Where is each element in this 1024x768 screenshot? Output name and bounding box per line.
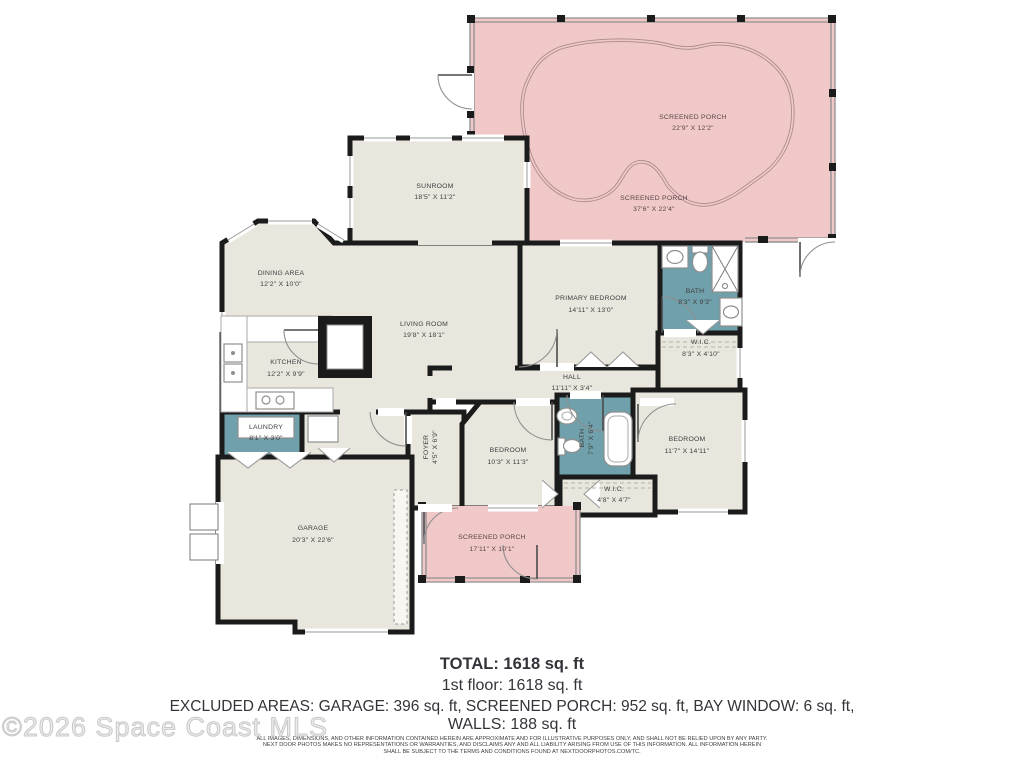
label-laundry-name: LAUNDRY bbox=[249, 424, 283, 431]
label-foyer-name: FOYER bbox=[423, 435, 430, 460]
garage-door-leaf bbox=[190, 504, 218, 530]
sunroom bbox=[350, 138, 527, 243]
garage-door-leaf bbox=[190, 534, 218, 560]
label-pool-porch-dims: 22'9" X 12'2" bbox=[672, 125, 714, 132]
floor-plan-page: SCREENED PORCH 22'9" X 12'2" SCREENED PO… bbox=[0, 0, 1024, 768]
label-living-dims: 19'8" X 18'1" bbox=[403, 332, 445, 339]
total-area-text: TOTAL: 1618 sq. ft bbox=[0, 655, 1024, 674]
label-kitchen-dims: 12'2" X 9'9" bbox=[267, 371, 305, 378]
label-bedroom3-name: BEDROOM bbox=[669, 436, 706, 443]
label-hall-name: HALL bbox=[563, 374, 581, 381]
label-bath2-dims: 7'9" X 6'4" bbox=[588, 421, 595, 455]
label-dining-name: DINING AREA bbox=[258, 270, 305, 277]
label-garage-dims: 20'3" X 22'6" bbox=[292, 537, 334, 544]
label-bath1-dims: 8'3" X 9'3" bbox=[678, 299, 712, 306]
label-wic1-name: W.I.C. bbox=[691, 339, 711, 346]
label-bedroom2-dims: 10'3" X 11'3" bbox=[487, 459, 528, 466]
label-wic2-dims: 4'8" X 4'7" bbox=[597, 497, 631, 504]
label-sunroom-dims: 18'5" X 11'2" bbox=[414, 194, 455, 201]
garage bbox=[218, 457, 412, 632]
label-bath1-name: BATH bbox=[686, 288, 705, 295]
label-hall-dims: 11'11" X 3'4" bbox=[552, 385, 593, 392]
label-garage-name: GARAGE bbox=[298, 525, 329, 532]
label-sunroom-name: SUNROOM bbox=[416, 183, 453, 190]
label-front-porch-name: SCREENED PORCH bbox=[458, 534, 526, 541]
label-front-porch-dims: 17'11" X 10'1" bbox=[469, 546, 515, 553]
label-wic1-dims: 8'3" X 4'10" bbox=[682, 351, 720, 358]
primary-bedroom bbox=[520, 243, 662, 367]
label-foyer-dims: 4'5" X 6'9" bbox=[432, 430, 439, 464]
label-pool-porch-name: SCREENED PORCH bbox=[659, 114, 727, 121]
label-living-name: LIVING ROOM bbox=[400, 321, 448, 328]
label-primary-dims: 14'11" X 13'0" bbox=[568, 307, 614, 314]
label-dining-dims: 12'2" X 10'0" bbox=[260, 281, 302, 288]
disclaimer-line-3: SHALL BE SUBJECT TO THE TERMS AND CONDIT… bbox=[0, 749, 1024, 755]
label-bedroom3-dims: 11'7" X 14'11" bbox=[665, 448, 710, 455]
first-floor-area-text: 1st floor: 1618 sq. ft bbox=[0, 677, 1024, 695]
screened-porch-front bbox=[418, 502, 581, 583]
label-kitchen-name: KITCHEN bbox=[270, 359, 302, 366]
label-top-porch-dims: 37'6" X 22'4" bbox=[633, 206, 675, 213]
label-bath2-name: BATH bbox=[579, 429, 586, 448]
label-top-porch-name: SCREENED PORCH bbox=[620, 195, 688, 202]
utility-box bbox=[308, 416, 338, 442]
label-laundry-dims: 8'1" X 3'0" bbox=[249, 435, 283, 442]
floor-plan-svg: SCREENED PORCH 22'9" X 12'2" SCREENED PO… bbox=[0, 0, 1024, 768]
label-primary-name: PRIMARY BEDROOM bbox=[555, 295, 627, 302]
mls-watermark: ©2026 Space Coast MLS bbox=[2, 712, 328, 743]
label-wic2-name: W.I.C. bbox=[604, 486, 624, 493]
label-bedroom2-name: BEDROOM bbox=[490, 447, 527, 454]
